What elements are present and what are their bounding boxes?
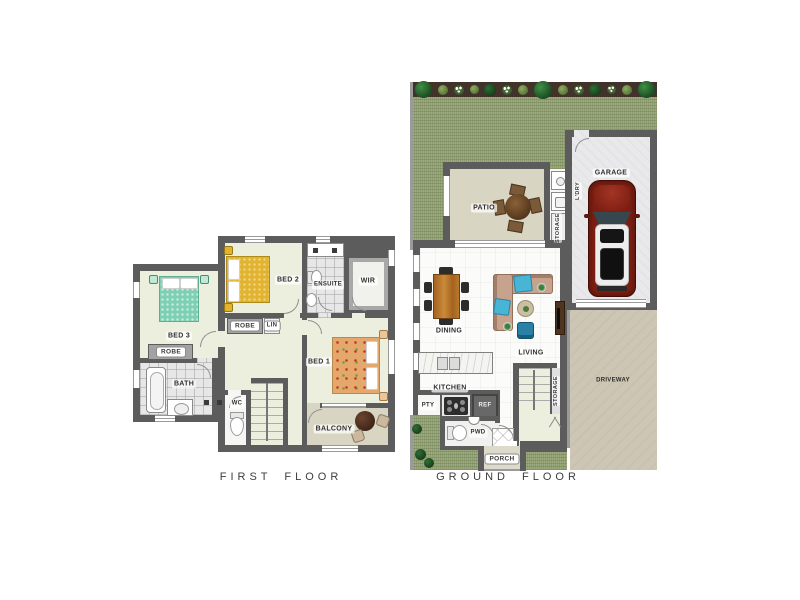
label-ldry: L'DRY <box>574 182 582 200</box>
dining-chair-icon <box>461 300 469 311</box>
dining-chair-icon <box>424 282 432 293</box>
label-storage-laundry: STORAGE <box>554 213 562 243</box>
car-hood <box>594 185 630 211</box>
ground-floor-plan: PATIO L'DRY STORAGE GARAGE DINING LIVING… <box>0 0 800 600</box>
dining-chair-icon <box>461 282 469 293</box>
sink-icon <box>449 357 460 370</box>
patio-table-icon <box>505 194 531 220</box>
gf-stairs-rail <box>533 370 535 410</box>
washing-machine-icon <box>551 192 566 211</box>
label-patio: PATIO <box>471 204 497 213</box>
bush-icon <box>415 81 432 98</box>
floorplan-canvas: BED 2 ENSUITE WIR BED 3 ROBE ROBE LIN BE… <box>0 0 800 600</box>
toilet-icon <box>447 424 467 440</box>
bush-icon <box>534 81 552 99</box>
bush-icon <box>484 84 496 96</box>
label-kitchen: KITCHEN <box>431 384 468 393</box>
window <box>443 176 450 216</box>
table-plant-icon <box>523 306 529 312</box>
bush-icon <box>638 81 655 98</box>
label-garage: GARAGE <box>593 169 630 178</box>
coffee-table-icon <box>517 300 534 317</box>
label-storage-stairs: STORAGE <box>552 376 560 406</box>
lawn-bottom-right <box>526 452 567 470</box>
tv-icon <box>557 308 560 329</box>
entry-bottom-wall <box>520 441 567 448</box>
label-pty: PTY <box>420 402 437 411</box>
car-mirror <box>584 214 590 218</box>
kitchen-island <box>418 352 493 374</box>
tv-unit-icon <box>555 301 565 335</box>
plant-icon <box>470 85 479 94</box>
plant-icon <box>537 283 546 292</box>
burner-center <box>454 403 458 409</box>
label-porch: PORCH <box>485 454 520 465</box>
bush-icon <box>589 84 601 96</box>
car-icon <box>588 180 636 297</box>
window <box>413 255 420 272</box>
label-driveway: DRIVEWAY <box>594 377 632 386</box>
sink-icon <box>437 357 448 370</box>
flower-icon <box>502 85 512 95</box>
sofa-cushion-icon <box>493 298 511 316</box>
burner <box>447 407 452 412</box>
first-floor-title: FIRST FLOOR <box>201 471 361 483</box>
car-sunroof <box>600 229 624 243</box>
label-dining: DINING <box>434 327 464 336</box>
dining-chair-icon <box>424 300 432 311</box>
label-living: LIVING <box>516 349 545 358</box>
tap-dot <box>556 177 565 186</box>
laundry-sink-icon <box>551 171 566 190</box>
label-ref: REF <box>477 402 494 411</box>
plant-icon <box>622 85 632 95</box>
flower-icon <box>574 85 584 95</box>
patio-chair-icon <box>507 220 524 233</box>
window <box>413 323 420 340</box>
sliding-door-patio <box>455 240 545 248</box>
door-gap-garage <box>574 130 589 137</box>
car-tailgate <box>597 286 627 291</box>
garage-door <box>576 299 646 308</box>
plant-icon <box>503 322 512 331</box>
stove-icon <box>444 397 468 415</box>
window <box>413 289 420 306</box>
burner <box>447 400 452 405</box>
bush-icon <box>424 458 434 468</box>
plant-icon <box>438 85 448 95</box>
bush-icon <box>412 424 422 434</box>
garden-bed <box>413 82 657 97</box>
sofa-cushion-icon <box>513 274 533 293</box>
dining-table-icon <box>433 274 460 319</box>
label-pwd: PWD <box>469 429 488 438</box>
toilet-bowl <box>452 425 467 441</box>
burner <box>460 407 465 412</box>
plant-icon <box>558 85 568 95</box>
flower-icon <box>454 85 464 95</box>
bush-icon <box>415 449 426 460</box>
car-rear-glass <box>600 248 624 280</box>
armchair-icon <box>517 322 534 339</box>
ground-floor-title: GROUND FLOOR <box>428 471 588 483</box>
plant-icon <box>518 85 528 95</box>
driveway-fence <box>567 310 570 448</box>
flower-icon <box>607 85 616 94</box>
car-mirror <box>634 214 640 218</box>
burner <box>460 400 465 405</box>
driveway <box>570 310 657 470</box>
